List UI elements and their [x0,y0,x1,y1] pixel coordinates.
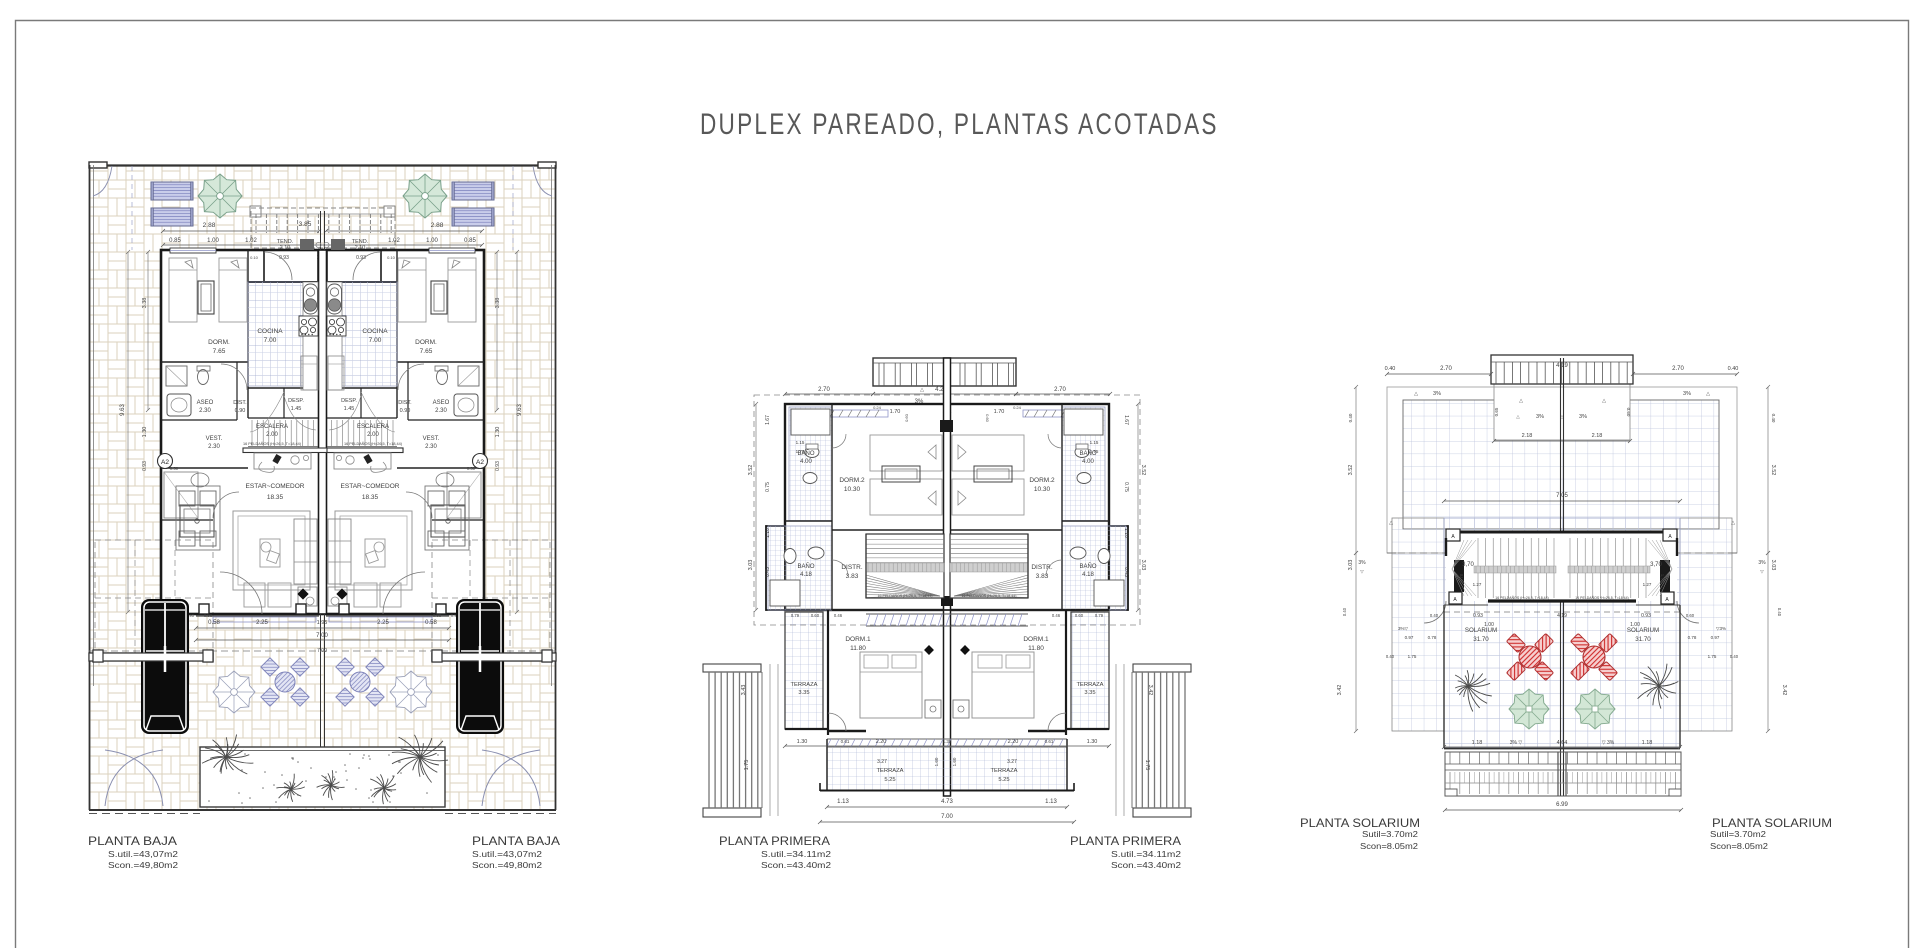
svg-text:3.03: 3.03 [1140,560,1146,571]
svg-text:3%: 3% [1683,391,1691,397]
svg-text:0.40: 0.40 [1777,608,1782,617]
svg-text:0.97: 0.97 [1405,635,1414,640]
svg-text:1.75: 1.75 [1708,654,1717,659]
svg-text:31.70: 31.70 [1473,636,1489,643]
svg-text:△: △ [1516,414,1520,419]
svg-text:0.40: 0.40 [1386,654,1395,659]
svg-text:▽: ▽ [1360,569,1364,574]
svg-text:Scon=8.05m2: Scon=8.05m2 [1710,842,1769,851]
svg-text:3.85: 3.85 [299,221,312,228]
svg-text:▽ 3%: ▽ 3% [1602,740,1615,746]
svg-text:1.02: 1.02 [245,238,257,244]
svg-text:2.70: 2.70 [818,387,830,393]
svg-text:1.70: 1.70 [890,409,901,415]
svg-text:7.00: 7.00 [316,633,328,639]
svg-text:3.42: 3.42 [1337,685,1343,696]
svg-text:9.63: 9.63 [517,404,523,416]
svg-text:0.93: 0.93 [1641,613,1651,619]
svg-text:DESP.: DESP. [341,398,357,404]
svg-text:0.97: 0.97 [1711,635,1720,640]
svg-text:16 PELDAÑOS (H=26,5, T=18,44): 16 PELDAÑOS (H=26,5, T=18,44) [962,593,1017,598]
svg-text:2.70: 2.70 [1672,366,1684,372]
svg-text:3%▽: 3%▽ [1398,626,1409,631]
svg-text:DISTR.: DISTR. [841,564,863,571]
svg-text:ASEO: ASEO [197,400,214,406]
svg-text:1.45: 1.45 [344,406,355,412]
svg-text:△: △ [1414,391,1418,397]
svg-text:△: △ [1519,398,1523,404]
svg-text:3.27: 3.27 [877,759,887,765]
svg-text:16 PELDAÑOS (H=26,5, T=18,44): 16 PELDAÑOS (H=26,5, T=18,44) [344,441,403,446]
svg-text:PLANTA BAJA: PLANTA BAJA [472,834,560,848]
svg-text:DESP.: DESP. [288,398,304,404]
svg-text:0.79: 0.79 [791,613,800,618]
svg-text:7.00: 7.00 [369,337,382,344]
svg-text:0.60: 0.60 [811,613,820,618]
svg-text:1.38: 1.38 [943,739,952,744]
svg-text:5.25: 5.25 [884,777,895,783]
svg-text:31.70: 31.70 [1635,636,1651,643]
svg-text:3.03: 3.03 [1770,560,1776,571]
svg-text:COCINA: COCINA [362,328,388,335]
svg-text:6.99: 6.99 [1556,802,1568,808]
svg-text:7.00: 7.00 [264,337,277,344]
svg-text:3%: 3% [1358,560,1366,566]
svg-text:0.45: 0.45 [765,567,771,577]
svg-text:DORM.: DORM. [415,339,437,346]
svg-text:0.40: 0.40 [1342,607,1347,616]
svg-text:1.70: 1.70 [994,409,1005,415]
svg-text:0.90: 0.90 [400,408,411,414]
svg-text:1.67: 1.67 [1123,415,1129,425]
svg-text:2.18: 2.18 [1592,433,1603,439]
svg-text:0.40: 0.40 [1385,366,1396,372]
svg-text:0.40: 0.40 [1730,654,1739,659]
svg-text:16 PELDAÑOS (H=26,5, T=18,44): 16 PELDAÑOS (H=26,5, T=18,44) [1575,595,1628,600]
svg-text:△: △ [1602,398,1606,404]
svg-text:0.93: 0.93 [495,461,501,471]
svg-text:1.27: 1.27 [1473,582,1482,587]
svg-text:0.61: 0.61 [1045,739,1054,744]
svg-text:0.60: 0.60 [1075,613,1084,618]
svg-text:VEST.: VEST. [206,436,223,442]
svg-text:S.util.=43,07m2: S.util.=43,07m2 [472,849,542,859]
svg-text:3,70: 3,70 [1462,562,1474,568]
svg-text:16 PELDAÑOS (H=26,5, T=18,44): 16 PELDAÑOS (H=26,5, T=18,44) [243,441,302,446]
svg-text:16 PELDAÑOS (H=26,5, T=18,44): 16 PELDAÑOS (H=26,5, T=18,44) [878,593,933,598]
svg-text:3%: 3% [1536,414,1544,420]
svg-text:0.50: 0.50 [467,466,476,471]
svg-text:1.95: 1.95 [317,620,328,626]
svg-text:7.65: 7.65 [213,348,226,355]
svg-text:3%: 3% [1579,414,1587,420]
svg-text:10.30: 10.30 [1034,486,1051,493]
svg-text:2.25: 2.25 [377,620,389,626]
svg-text:A2: A2 [476,459,484,466]
svg-text:△: △ [1389,520,1393,526]
svg-text:0.78: 0.78 [1688,635,1697,640]
svg-text:1.45: 1.45 [291,406,302,412]
svg-text:Scon.=43.40m2: Scon.=43.40m2 [1111,860,1181,870]
svg-text:PLANTA SOLARIUM: PLANTA SOLARIUM [1712,816,1832,830]
svg-text:3.38: 3.38 [142,298,148,309]
svg-text:0.58: 0.58 [208,620,220,626]
svg-text:ESTAR~COMEDOR: ESTAR~COMEDOR [341,483,400,490]
svg-text:A2: A2 [161,459,169,466]
svg-text:4.19: 4.19 [1556,363,1568,369]
svg-text:2.88: 2.88 [431,222,444,229]
svg-text:9.63: 9.63 [120,404,126,416]
svg-text:0.85: 0.85 [169,238,181,244]
svg-text:DORM.: DORM. [208,339,230,346]
svg-text:PLANTA PRIMERA: PLANTA PRIMERA [719,834,830,848]
svg-text:18.35: 18.35 [362,494,379,501]
svg-text:1.30: 1.30 [1087,739,1098,745]
svg-text:2.10: 2.10 [280,245,291,251]
svg-text:3.35: 3.35 [798,690,809,696]
svg-text:1.15: 1.15 [1090,440,1099,445]
svg-text:7.65: 7.65 [420,348,433,355]
svg-text:△: △ [1706,391,1710,397]
svg-text:1.30: 1.30 [142,427,148,438]
svg-text:3.43: 3.43 [741,685,747,696]
svg-text:3%: 3% [1433,391,1441,397]
svg-text:2.30: 2.30 [425,444,437,450]
svg-text:0.90: 0.90 [235,408,246,414]
svg-text:3.52: 3.52 [1140,465,1146,476]
svg-text:PLANTA SOLARIUM: PLANTA SOLARIUM [1300,816,1420,830]
svg-text:1.75: 1.75 [744,760,750,771]
svg-text:11.80: 11.80 [850,645,866,652]
svg-text:1,78: 1,78 [1459,573,1464,582]
svg-text:4.00: 4.00 [1082,459,1094,465]
svg-text:1.13: 1.13 [1045,799,1057,805]
svg-text:2.00: 2.00 [266,432,278,438]
svg-text:0.10: 0.10 [387,255,396,260]
svg-text:7.05: 7.05 [1556,493,1568,499]
svg-text:▽3%: ▽3% [1716,626,1726,631]
svg-text:3.83: 3.83 [1036,573,1049,580]
svg-text:4.00: 4.00 [800,459,812,465]
svg-text:3% ▽: 3% ▽ [1510,740,1523,746]
svg-text:2.70: 2.70 [1054,387,1066,393]
svg-text:18.35: 18.35 [267,494,284,501]
svg-text:COCINA: COCINA [257,328,283,335]
svg-text:1.18: 1.18 [1642,740,1653,746]
svg-text:PLANTA PRIMERA: PLANTA PRIMERA [1070,834,1181,848]
svg-text:Scon.=49,80m2: Scon.=49,80m2 [108,860,178,870]
svg-text:2.00: 2.00 [367,432,379,438]
svg-text:3.38: 3.38 [495,298,501,309]
svg-text:16 PELDAÑOS (H=26,5, T=18,44): 16 PELDAÑOS (H=26,5, T=18,44) [1495,595,1548,600]
svg-text:3.52: 3.52 [1348,465,1354,476]
svg-text:S.util.=34.11m2: S.util.=34.11m2 [1111,849,1181,859]
svg-text:Sutil=3.70m2: Sutil=3.70m2 [1362,830,1419,839]
svg-text:1.10: 1.10 [1123,528,1129,538]
svg-text:2.20: 2.20 [876,739,887,745]
svg-text:BAÑO: BAÑO [1079,563,1096,570]
svg-text:0.40: 0.40 [1771,414,1776,423]
svg-text:2.88: 2.88 [203,222,216,229]
svg-text:S.util.=43,07m2: S.util.=43,07m2 [108,849,178,859]
svg-text:7.00: 7.00 [941,814,953,820]
svg-text:0.50: 0.50 [170,466,179,471]
svg-text:ESCALERA: ESCALERA [357,424,389,430]
svg-text:1.30: 1.30 [495,427,501,438]
svg-text:3%: 3% [1758,560,1766,566]
svg-text:△: △ [920,387,924,393]
svg-text:0.46: 0.46 [1052,613,1061,618]
svg-text:ESCALERA: ESCALERA [256,424,288,430]
svg-text:TERRAZA: TERRAZA [990,768,1017,774]
svg-text:2.20: 2.20 [1008,739,1019,745]
svg-text:1.75: 1.75 [1144,760,1150,771]
svg-text:0.40: 0.40 [1430,613,1439,618]
svg-text:2.70: 2.70 [1440,366,1452,372]
svg-text:1.00: 1.00 [207,238,219,244]
svg-text:1.02: 1.02 [388,238,400,244]
svg-text:TERRAZA: TERRAZA [876,768,903,774]
svg-text:ESTAR~COMEDOR: ESTAR~COMEDOR [246,483,305,490]
svg-text:0.78: 0.78 [1428,635,1437,640]
svg-text:TERRAZA: TERRAZA [790,682,817,688]
svg-text:DORM.2: DORM.2 [839,477,865,484]
svg-text:0.60: 0.60 [1626,408,1631,417]
svg-text:SOLARIUM: SOLARIUM [1465,627,1497,634]
svg-text:3.52: 3.52 [748,465,754,476]
svg-text:0.79: 0.79 [1095,613,1104,618]
svg-text:BAÑO: BAÑO [797,450,814,457]
svg-text:Scon.=49,80m2: Scon.=49,80m2 [472,860,542,870]
svg-text:2.30: 2.30 [199,408,211,414]
svg-text:▽: ▽ [1760,569,1764,574]
svg-text:10.30: 10.30 [844,486,861,493]
svg-text:1.67: 1.67 [765,415,771,425]
svg-text:4.18: 4.18 [1082,572,1094,578]
svg-text:0.58: 0.58 [425,620,437,626]
svg-text:BAÑO: BAÑO [797,563,814,570]
svg-text:PLANTA BAJA: PLANTA BAJA [88,834,177,848]
svg-text:4.19: 4.19 [1557,613,1567,619]
svg-text:0.86: 0.86 [204,613,213,618]
svg-text:0.60: 0.60 [985,414,990,423]
svg-text:Sutil=3.70m2: Sutil=3.70m2 [1710,830,1767,839]
svg-text:0.75: 0.75 [765,482,771,492]
svg-text:Scon=8.05m2: Scon=8.05m2 [1360,842,1419,851]
svg-text:0.60: 0.60 [904,413,909,422]
svg-text:3,70: 3,70 [1650,562,1662,568]
svg-text:3.35: 3.35 [1084,690,1095,696]
svg-text:DIST.: DIST. [233,400,247,406]
svg-text:TERRAZA: TERRAZA [1076,682,1103,688]
svg-text:0.10: 0.10 [250,255,259,260]
svg-text:2.10: 2.10 [355,245,366,251]
svg-text:2.30: 2.30 [208,444,220,450]
svg-text:1.15: 1.15 [796,440,805,445]
svg-text:0.65: 0.65 [1494,407,1499,416]
svg-text:0.60: 0.60 [1686,613,1695,618]
svg-text:0.93: 0.93 [142,461,148,471]
svg-text:3.42: 3.42 [1781,685,1787,696]
svg-text:0.24: 0.24 [873,405,882,410]
svg-text:1,78: 1,78 [1660,574,1665,583]
svg-text:3.42: 3.42 [1147,685,1153,696]
svg-text:1.13: 1.13 [837,799,849,805]
svg-text:3.27: 3.27 [1007,759,1017,765]
svg-text:DISTR.: DISTR. [1031,564,1053,571]
svg-text:0.46: 0.46 [834,613,843,618]
svg-text:2.18: 2.18 [1522,433,1533,439]
svg-text:0.93: 0.93 [1473,613,1483,619]
svg-text:DORM.1: DORM.1 [845,636,871,643]
svg-text:0.85: 0.85 [464,238,476,244]
svg-text:4.64: 4.64 [1557,740,1568,746]
svg-text:DUPLEX PAREADO, PLANTAS ACOTAD: DUPLEX PAREADO, PLANTAS ACOTADAS [700,107,1219,140]
svg-text:1.00: 1.00 [426,238,438,244]
svg-text:4.73: 4.73 [941,799,953,805]
svg-text:0.40: 0.40 [1348,413,1353,422]
svg-text:0.40: 0.40 [1728,366,1739,372]
svg-text:1.10: 1.10 [765,528,771,538]
svg-text:4.18: 4.18 [800,572,812,578]
svg-text:0.86: 0.86 [433,613,442,618]
svg-text:1.60: 1.60 [952,757,957,766]
svg-text:S.util.=34.11m2: S.util.=34.11m2 [761,849,831,859]
svg-text:2.30: 2.30 [435,408,447,414]
svg-text:SOLARIUM: SOLARIUM [1627,627,1659,634]
svg-text:0.24: 0.24 [1013,405,1022,410]
svg-text:△: △ [1731,520,1735,526]
svg-text:Scon.=43.40m2: Scon.=43.40m2 [761,860,831,870]
svg-text:1.18: 1.18 [1472,740,1483,746]
svg-text:5.25: 5.25 [998,777,1009,783]
svg-text:1.30: 1.30 [797,739,808,745]
svg-text:0.75: 0.75 [1123,482,1129,492]
svg-text:1.27: 1.27 [1643,582,1652,587]
svg-text:0.61: 0.61 [841,739,850,744]
svg-text:3.83: 3.83 [846,573,859,580]
svg-text:DORM.1: DORM.1 [1023,636,1049,643]
svg-text:ASEO: ASEO [433,400,450,406]
svg-text:3.52: 3.52 [1770,465,1776,476]
svg-text:DIST.: DIST. [398,400,412,406]
svg-text:BAÑO: BAÑO [1079,450,1096,457]
svg-text:1.75: 1.75 [1408,654,1417,659]
svg-text:0.45: 0.45 [1123,567,1129,577]
svg-text:VEST.: VEST. [423,436,440,442]
svg-text:3.03: 3.03 [1348,560,1354,571]
svg-text:2.25: 2.25 [256,620,268,626]
svg-text:3.03: 3.03 [748,560,754,571]
svg-text:DORM.2: DORM.2 [1029,477,1055,484]
svg-text:11.80: 11.80 [1028,645,1044,652]
svg-text:1.60: 1.60 [934,757,939,766]
